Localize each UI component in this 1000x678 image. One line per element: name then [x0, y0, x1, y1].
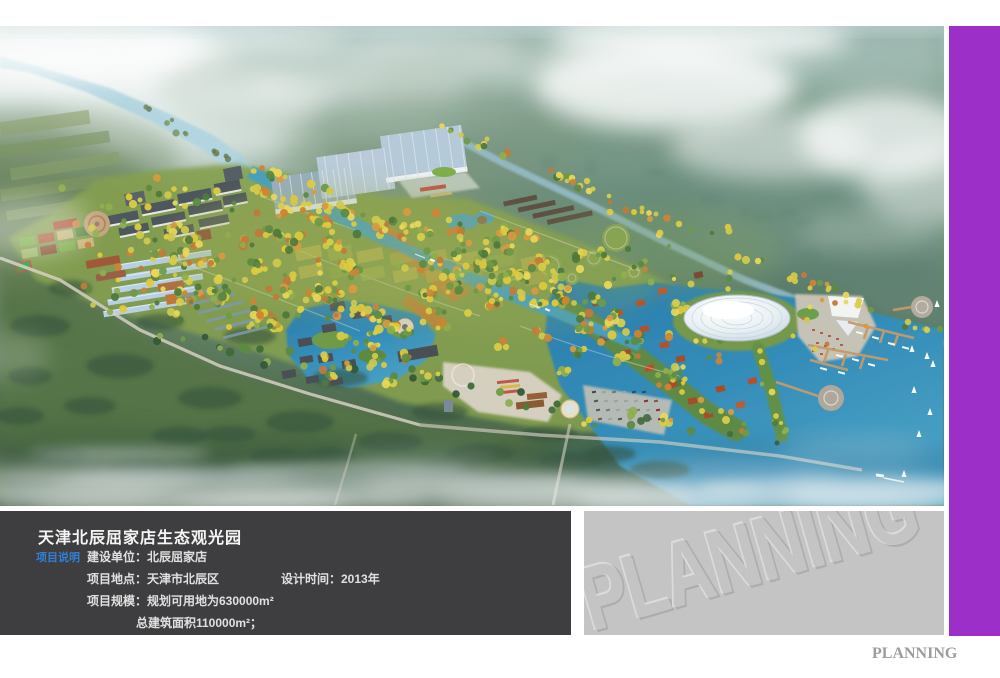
- svg-text:PLANNING: PLANNING: [584, 511, 929, 635]
